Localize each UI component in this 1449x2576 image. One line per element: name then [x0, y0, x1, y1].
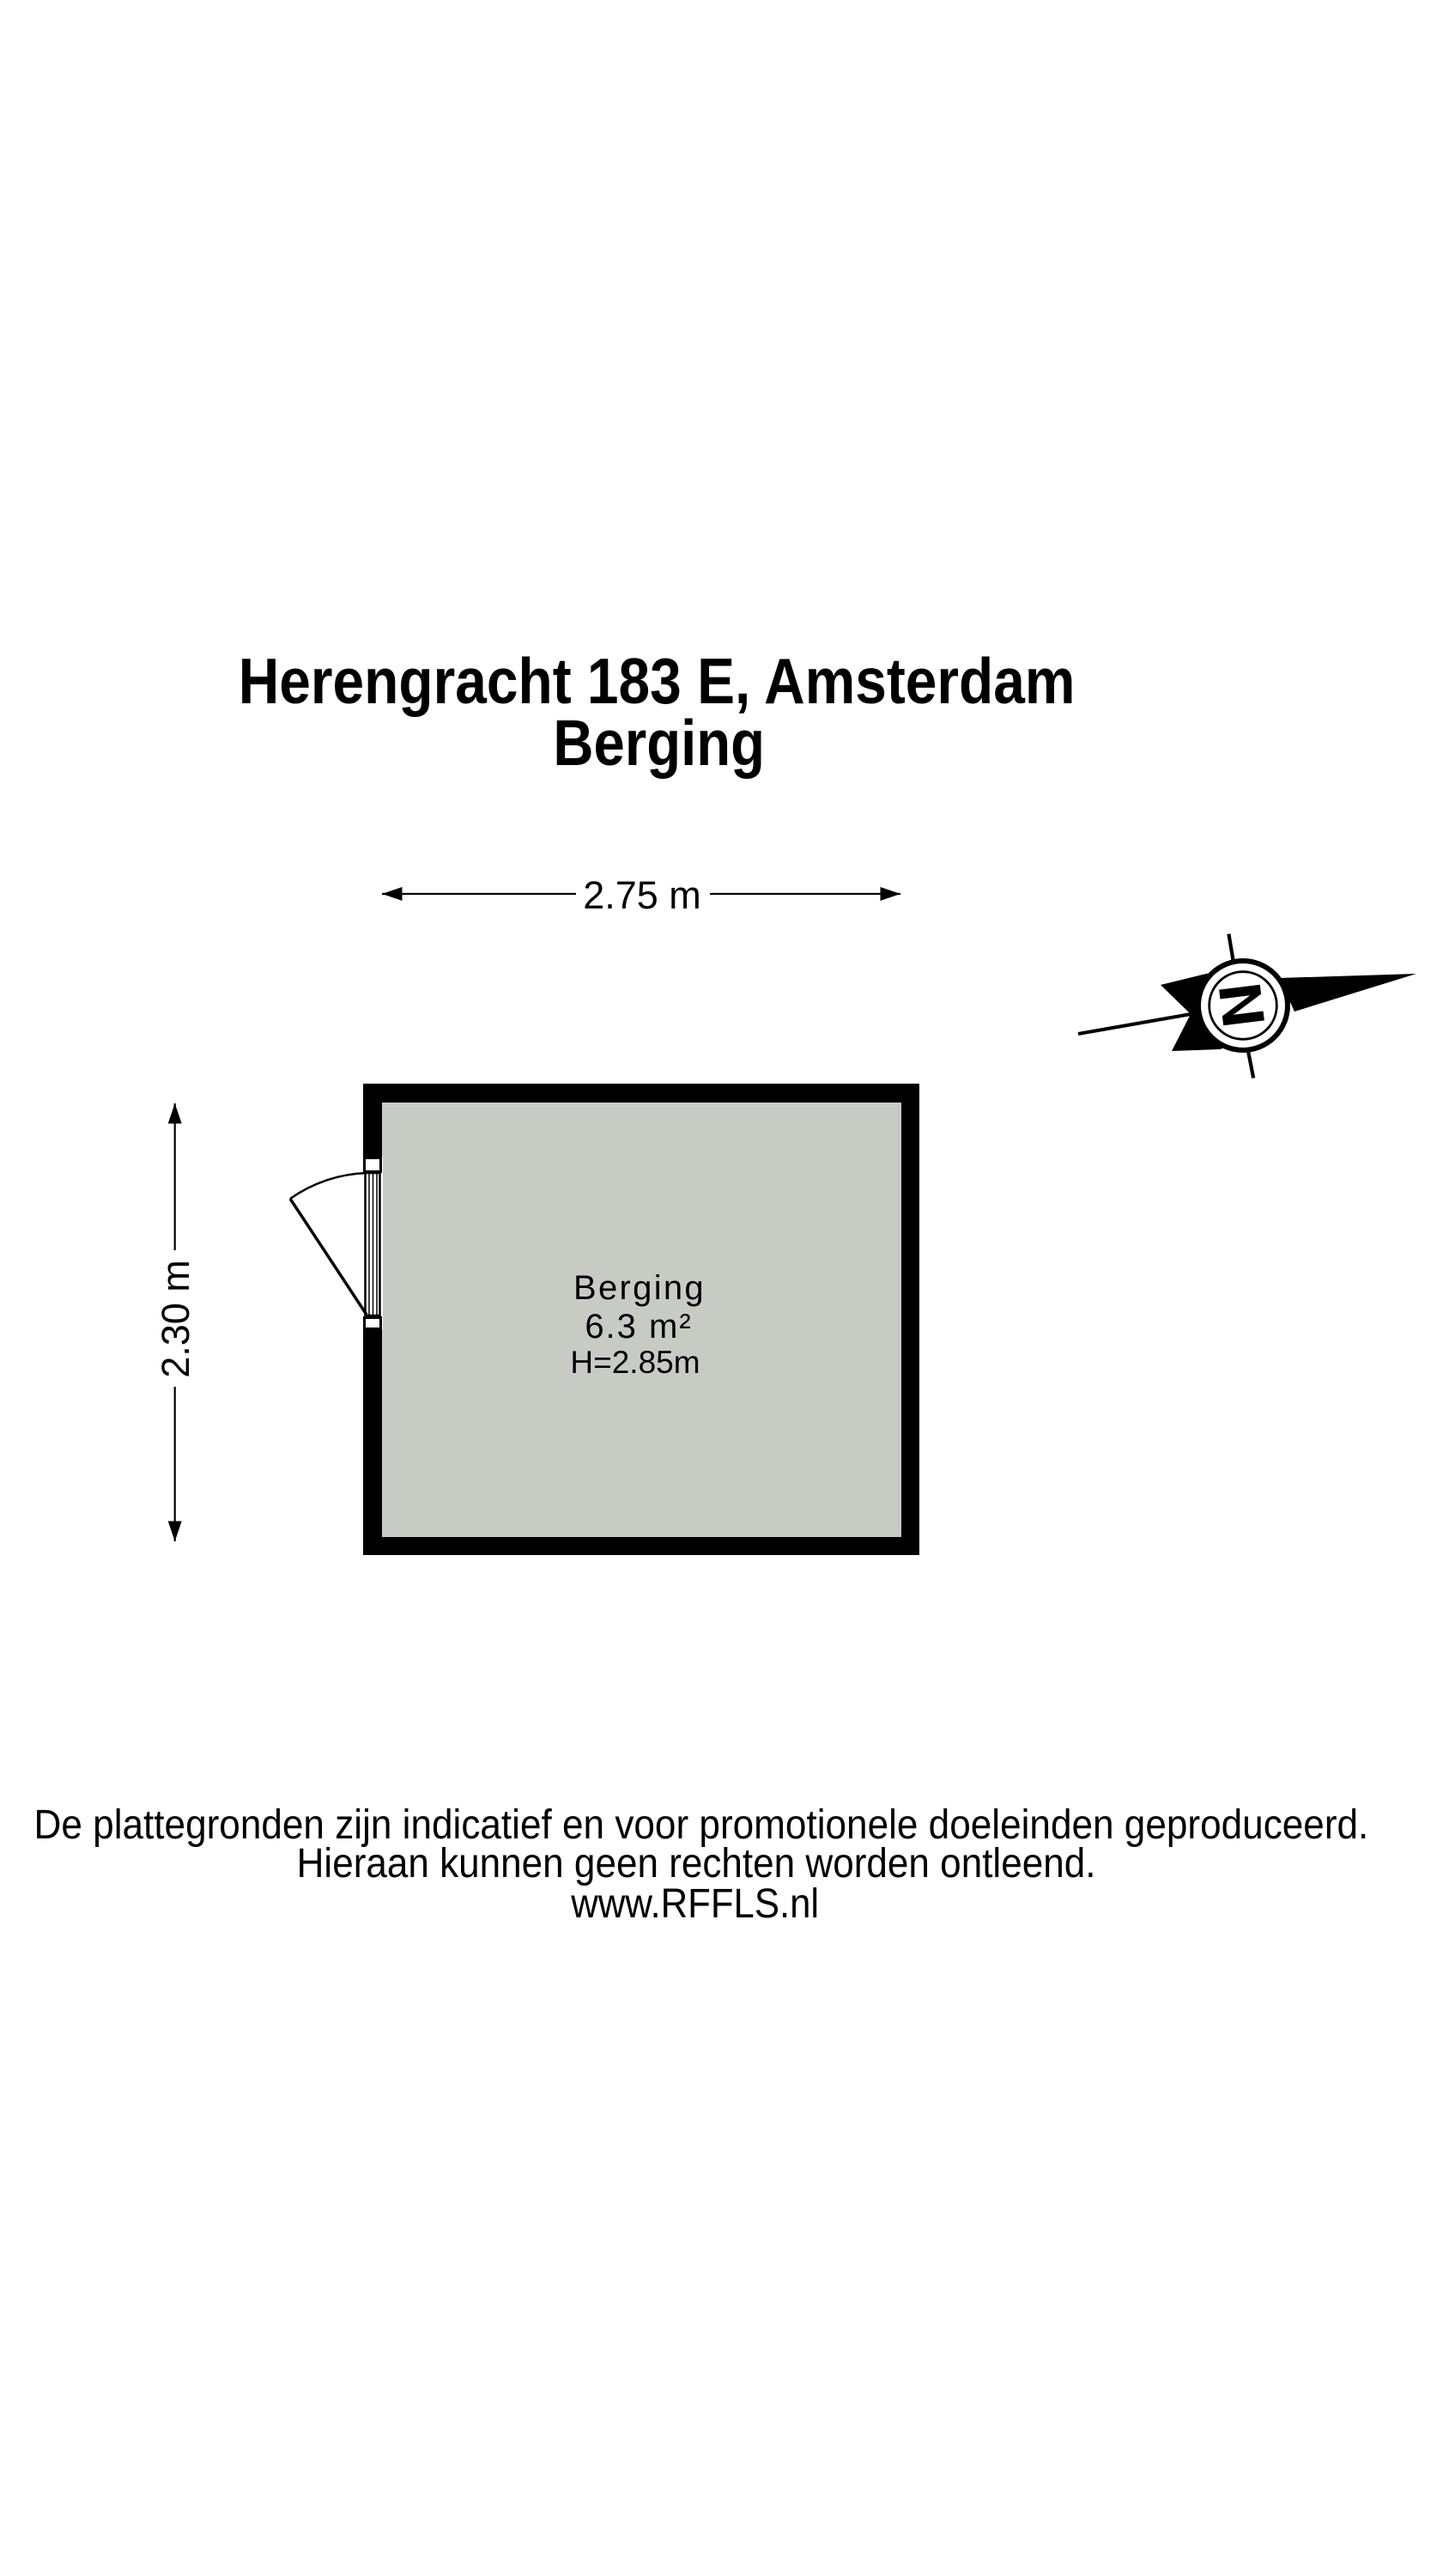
- svg-text:2.30 m: 2.30 m: [154, 1260, 197, 1378]
- svg-text:6.3 m²: 6.3 m²: [585, 1308, 692, 1346]
- svg-text:H=2.85m: H=2.85m: [570, 1345, 700, 1380]
- svg-text:Berging: Berging: [573, 1269, 706, 1307]
- svg-text:2.75 m: 2.75 m: [583, 873, 701, 917]
